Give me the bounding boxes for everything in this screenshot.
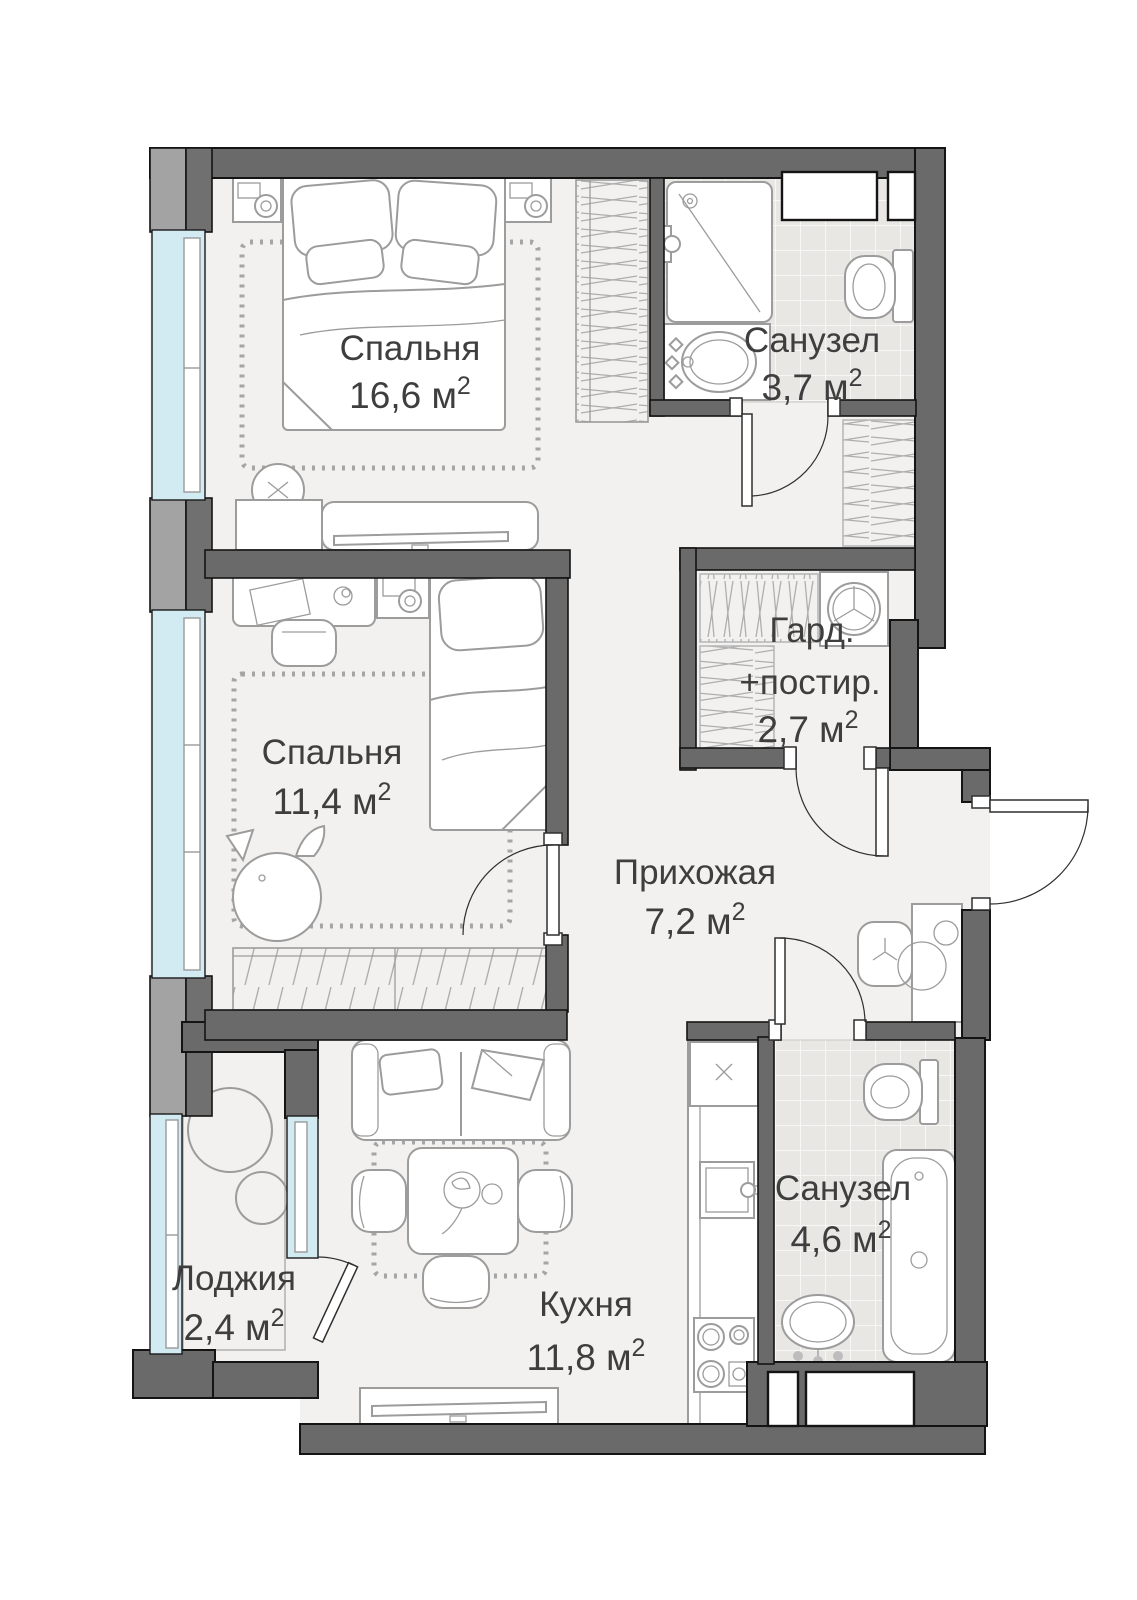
dining-chair-right <box>518 1170 572 1232</box>
wardrobe-laundry-name-2: +постир. <box>739 663 880 702</box>
sofa <box>352 1040 570 1140</box>
window-loggia-inner <box>287 1116 318 1258</box>
single-bed <box>430 566 552 830</box>
nightstand-left <box>233 178 281 222</box>
tv-cabinet-bedroom-1 <box>322 502 538 550</box>
bathroom-2-area: 4,6 м2 <box>790 1216 891 1260</box>
hob <box>694 1318 754 1392</box>
toilet-bathroom-2 <box>864 1060 938 1124</box>
pillar-top-left <box>150 148 212 232</box>
wardrobe-bedroom-2 <box>233 948 557 1010</box>
shower-tray <box>663 182 772 322</box>
kitchen-area: 11,8 м2 <box>527 1334 646 1378</box>
nightstand-right <box>505 178 551 222</box>
bedroom-1-name: Спальня <box>340 329 481 368</box>
duct-shaft <box>768 1372 798 1426</box>
wardrobe-laundry-area: 2,7 м2 <box>757 706 858 750</box>
console-table <box>912 904 962 1022</box>
bedroom-2-name: Спальня <box>262 733 403 772</box>
kitchen-name: Кухня <box>539 1285 633 1324</box>
dining-chair-bottom <box>423 1256 489 1308</box>
bathroom-2-name: Санузел <box>775 1169 911 1208</box>
dining-table <box>408 1148 518 1254</box>
bedroom-1-closet-rail <box>576 180 648 422</box>
duct-shaft <box>782 172 877 220</box>
toilet-bathroom-1 <box>845 250 913 322</box>
duct-shaft <box>806 1372 914 1426</box>
fridge <box>690 1042 758 1106</box>
wardrobe-laundry-name-1: Гард. <box>769 611 854 650</box>
loggia-name: Лоджия <box>172 1259 296 1298</box>
hallway-name: Прихожая <box>614 853 776 892</box>
hallway-closet <box>843 420 915 546</box>
window-bedroom-1 <box>152 230 205 500</box>
dining-chair-left <box>352 1170 406 1232</box>
bedroom-1-area: 16,6 м2 <box>349 372 471 416</box>
bathroom-1-name: Санузел <box>744 321 880 360</box>
floor-plan-canvas: Спальня 16,6 м2 Санузел 3,7 м2 Спальня 1… <box>0 0 1137 1600</box>
window-loggia-left <box>150 1114 182 1354</box>
pillar-mid-left <box>150 498 212 612</box>
bedroom-2-area: 11,4 м2 <box>273 778 392 822</box>
floor-plan-page: Спальня 16,6 м2 Санузел 3,7 м2 Спальня 1… <box>0 0 1137 1600</box>
tv-cabinet-kitchen <box>360 1388 558 1425</box>
entry-chair <box>858 922 912 986</box>
window-bedroom-2 <box>152 610 205 978</box>
exterior-mask <box>138 1398 300 1458</box>
duct-shaft <box>888 172 915 220</box>
hallway-area: 7,2 м2 <box>644 898 745 942</box>
bathroom-1-area: 3,7 м2 <box>761 364 862 408</box>
loggia-area: 2,4 м2 <box>183 1304 284 1348</box>
